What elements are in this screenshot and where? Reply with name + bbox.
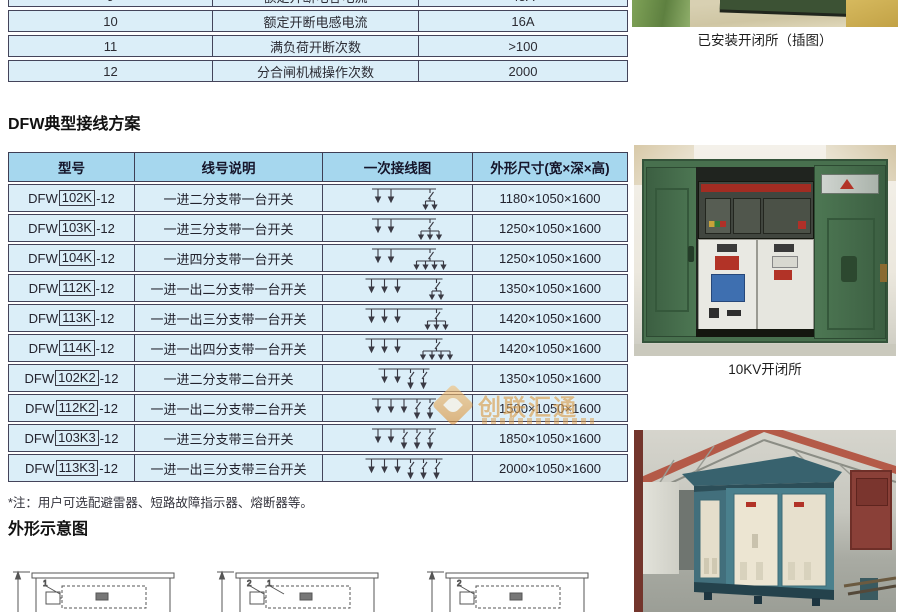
indicator-lights [709,221,726,227]
description-cell: 一进一出二分支带一台开关 [134,274,322,302]
size-cell: 1180×1050×1600 [472,184,628,212]
description-cell: 一进四分支带一台开关 [134,244,322,272]
warning-triangle-icon [840,179,854,189]
size-cell: 1850×1050×1600 [472,424,628,452]
spec-cell: 额定开断电感电流 [212,10,418,32]
model-cell: DFW102K2 -12 [8,364,134,392]
scheme-row: DFW103K3 -12一进三分支带三台开关1850×1050×1600 [8,424,628,452]
door-handle [841,256,857,282]
spec-cell: 11 [8,35,212,57]
scheme-row: DFW112K2 -12一进一出二分支带二台开关1500×1050×1600 [8,394,628,422]
switchgear-cubicle [698,239,757,331]
catalog-page: 9额定开断电容电流45A10额定开断电感电流16A11满负荷开断次数>10012… [0,0,900,612]
grass [632,0,690,27]
scheme-header-cell: 线号说明 [134,152,322,182]
svg-text:2: 2 [457,579,462,588]
model-cell: DFW113K-12 [8,304,134,332]
model-cell: DFW112K-12 [8,274,134,302]
caption-10kv-station: 10KV开闭所 [634,358,896,378]
scheme-header-row: 型号线号说明一次接线图外形尺寸(宽×深×高) [8,152,628,182]
red-strip [701,184,811,192]
door-handle [688,246,694,262]
scheme-row: DFW104K-12一进四分支带一台开关1250×1050×1600 [8,244,628,272]
outline-section-title: 外形示意图 [8,515,88,539]
wiring-diagram-cell [322,334,472,362]
wiring-diagram-cell [322,184,472,212]
mimic-panel [733,198,761,234]
spec-cell: 满负荷开断次数 [212,35,418,57]
wiring-diagram-cell [322,364,472,392]
scheme-row: DFW114K-12一进一出四分支带一台开关1420×1050×1600 [8,334,628,362]
spec-row: 9额定开断电容电流45A [8,0,628,7]
description-cell: 一进三分支带一台开关 [134,214,322,242]
spec-cell: 45A [418,0,628,7]
door-nameplate [821,174,879,194]
breaker-handle [715,256,739,270]
floor [634,344,896,356]
svg-text:1: 1 [43,579,48,588]
slot [727,310,741,316]
scheme-row: DFW112K-12一进一出二分支带一台开关1350×1050×1600 [8,274,628,302]
spec-cell: 分合闸机械操作次数 [212,60,418,82]
photo-10kv-station [634,145,896,356]
left-door [646,167,698,337]
socket [709,308,719,318]
red-button [798,221,806,229]
model-cell: DFW102K-12 [8,184,134,212]
size-cell: 1250×1050×1600 [472,214,628,242]
substation-box [634,430,896,612]
spec-row: 11满负荷开断次数>100 [8,35,628,57]
scheme-section-title: DFW典型接线方案 [8,110,140,134]
scheme-row: DFW102K-12一进二分支带一台开关1180×1050×1600 [8,184,628,212]
svg-text:1: 1 [267,579,272,588]
door-panel [655,188,689,312]
scheme-row: DFW102K2 -12一进二分支带二台开关1350×1050×1600 [8,364,628,392]
photo-installed-station [632,0,898,27]
description-cell: 一进一出二分支带二台开关 [134,394,322,422]
door-hinge [880,264,887,282]
model-cell: DFW112K2 -12 [8,394,134,422]
spec-cell: 12 [8,60,212,82]
size-cell: 1500×1050×1600 [472,394,628,422]
description-cell: 一进二分支带二台开关 [134,364,322,392]
cabinet-outline-drawing: 1 [10,560,182,612]
model-cell: DFW114K-12 [8,334,134,362]
spec-row: 10额定开断电感电流16A [8,10,628,32]
wiring-diagram-cell [322,244,472,272]
size-cell: 1350×1050×1600 [472,274,628,302]
scheme-header-cell: 外形尺寸(宽×深×高) [472,152,628,182]
red-label [774,270,792,280]
scheme-header-cell: 型号 [8,152,134,182]
wiring-diagram-cell [322,454,472,482]
wiring-diagram-cell [322,274,472,302]
cabinet-outline-drawing: 21 [214,560,386,612]
description-cell: 一进一出三分支带一台开关 [134,304,322,332]
wiring-diagram-cell [322,394,472,422]
meter-module [705,198,731,234]
relay-panel [763,198,811,234]
model-cell: DFW103K3 -12 [8,424,134,452]
size-cell: 2000×1050×1600 [472,454,628,482]
size-cell: 1420×1050×1600 [472,304,628,332]
wiring-diagram-cell [322,214,472,242]
spec-cell: 额定开断电容电流 [212,0,418,7]
size-cell: 1250×1050×1600 [472,244,628,272]
description-cell: 一进一出三分支带三台开关 [134,454,322,482]
spec-table: 9额定开断电容电流45A10额定开断电感电流16A11满负荷开断次数>10012… [8,0,628,85]
footnote: *注：用户可选配避雷器、短路故障指示器、熔断器等。 [8,492,313,511]
scheme-row: DFW113K-12一进一出三分支带一台开关1420×1050×1600 [8,304,628,332]
spec-cell: 16A [418,10,628,32]
right-door [814,165,886,339]
model-cell: DFW113K3 -12 [8,454,134,482]
spec-cell: 2000 [418,60,628,82]
description-cell: 一进二分支带一台开关 [134,184,322,212]
description-cell: 一进三分支带三台开关 [134,424,322,452]
wiring-diagram-cell [322,424,472,452]
label [774,244,794,252]
interior-opening [696,167,814,337]
scheme-row: DFW113K3 -12一进一出三分支带三台开关2000×1050×1600 [8,454,628,482]
size-cell: 1420×1050×1600 [472,334,628,362]
spec-row: 12分合闸机械操作次数2000 [8,60,628,82]
scheme-row: DFW103K-12一进三分支带一台开关1250×1050×1600 [8,214,628,242]
label [717,244,737,252]
wiring-diagram-cell [322,304,472,332]
model-cell: DFW104K-12 [8,244,134,272]
ground [846,0,898,27]
spec-cell: >100 [418,35,628,57]
caption-installed-station: 已安装开闭所（插图） [632,29,898,49]
size-cell: 1350×1050×1600 [472,364,628,392]
window [772,256,798,268]
spec-cell: 10 [8,10,212,32]
scheme-header-cell: 一次接线图 [322,152,472,182]
cabinet-base [696,329,814,337]
svg-text:2: 2 [247,579,252,588]
photo-box-substation [634,430,896,612]
switchgear-cubicle [757,239,814,331]
blue-label [711,274,745,302]
model-cell: DFW103K-12 [8,214,134,242]
description-cell: 一进一出四分支带一台开关 [134,334,322,362]
control-panel [698,181,814,239]
scheme-table: 型号线号说明一次接线图外形尺寸(宽×深×高)DFW102K-12一进二分支带一台… [8,152,628,484]
spec-cell: 9 [8,0,212,7]
cabinet-outline-drawing: 2 [424,560,596,612]
